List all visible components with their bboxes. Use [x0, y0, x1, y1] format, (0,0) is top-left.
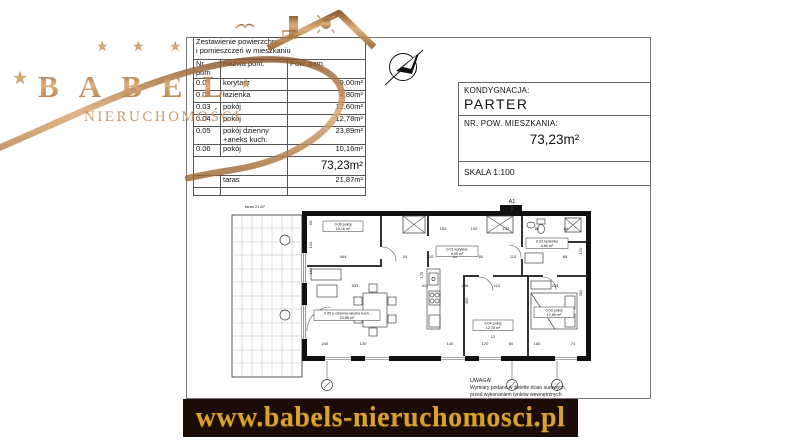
star-icon: ★ [169, 39, 182, 55]
dimension-label: 302 [578, 289, 583, 296]
fridge [429, 315, 440, 327]
dimension-label: 180 [534, 341, 541, 346]
storey-section: KONDYGNACJA: PARTER [459, 83, 650, 115]
dimension-label: taras 21,87 [245, 204, 266, 209]
room-label: 0.06 pokój10,16 m² [323, 221, 363, 232]
dimension-label: 110 [510, 254, 517, 259]
dimension-label: 24 [403, 254, 408, 259]
room-label-text: 0.03 pokój [545, 308, 562, 312]
room-label-text: 0.06 pokój [334, 222, 351, 226]
table-row: 0.06pokój10,16m² [194, 145, 366, 157]
room-label: 0.02 łazienka4,80 m² [526, 238, 568, 249]
star-icon: ★ [96, 39, 109, 55]
total-area-cell: 73,23m² [288, 157, 366, 176]
table-cell: 12,60m² [288, 102, 366, 114]
table-cell: pokój [221, 114, 288, 126]
room-label: 0.01 korytarz9,00 m² [436, 246, 478, 257]
table-cell: korytarz [221, 78, 288, 90]
title-block: KONDYGNACJA: PARTER NR. POW. MIESZKANIA:… [458, 82, 651, 186]
dimension-label: 12 [491, 334, 496, 339]
table-cell: 0.05 [194, 126, 221, 145]
table-title-line2: i pomieszczeń w mieszkaniu [196, 47, 363, 56]
dimension-label: 296 [462, 283, 469, 288]
table-row: 0.05pokój dzienny +aneks kuch.23,89m² [194, 126, 366, 145]
table-title-cell: Zestawienie powierzchni i pomieszczeń w … [194, 38, 366, 60]
table-title-row: Zestawienie powierzchni i pomieszczeń w … [194, 38, 366, 60]
dimension-label: 120 [308, 241, 313, 248]
table-row: 0.02łazienka4,80m² [194, 90, 366, 102]
table-cell: 10,16m² [288, 145, 366, 157]
dimension-label: 175 [419, 271, 424, 278]
room-label-text: 23,89 m² [340, 316, 355, 320]
table-cell: pokój dzienny +aneks kuch. [221, 126, 288, 145]
coffee-table [317, 285, 337, 297]
table-total-row: 73,23m² [194, 157, 366, 176]
bathtub [525, 253, 543, 263]
storey-label: KONDYGNACJA: [464, 86, 645, 95]
dimension-label: 132 [503, 226, 510, 231]
room-label-text: 0.04 pokój [484, 321, 501, 325]
sink [429, 273, 438, 285]
dimension-label: 120 [482, 341, 489, 346]
table-cell: pokój [221, 145, 288, 157]
table-header-row: Nr pom Nazwa pom. Pow. pom. [194, 60, 366, 79]
dimension-label: 120 [578, 247, 583, 254]
scale-label: SKALA 1:100 [464, 167, 645, 177]
dimension-label: 50 [308, 220, 313, 225]
apartment-area-value: 73,23m² [464, 132, 645, 147]
table-row: 0.03pokój12,60m² [194, 102, 366, 114]
wardrobe [531, 281, 551, 289]
note-line1: Wymiary podano w świetle ścian surowych, [470, 385, 645, 392]
table-cell: 0.01 [194, 78, 221, 90]
bird-icon [236, 25, 254, 29]
table-cell: 12,78m² [288, 114, 366, 126]
dimension-label: 162 [308, 267, 313, 274]
scale-section: SKALA 1:100 [459, 161, 650, 187]
dimension-label: 246 [322, 341, 329, 346]
table-cell: 0.02 [194, 90, 221, 102]
table-cell: 21,87m² [288, 176, 366, 188]
sofa [311, 269, 341, 280]
room-label-text: 0.01 korytarz [446, 247, 467, 251]
apartment-area-label: NR. POW. MIESZKANIA: [464, 119, 645, 128]
room-label-text: 4,80 m² [541, 244, 554, 248]
dimension-label: 110 [494, 283, 501, 288]
table-cell: pokój [221, 102, 288, 114]
dimension-label: 462 [464, 297, 469, 304]
table-cell: taras [221, 176, 288, 188]
axis-marker-circle [280, 310, 290, 320]
axis-label: A1 [509, 199, 516, 205]
col-header-name: Nazwa pom. [221, 60, 288, 79]
apartment-area-section: NR. POW. MIESZKANIA: 73,23m² [459, 115, 650, 161]
star-icon: ★ [12, 68, 28, 89]
room-label-text: 0.05 p.dzienny+aneks kuch. [324, 311, 370, 315]
terrace [232, 215, 302, 377]
room-label-text: 0.02 łazienka [536, 239, 559, 243]
star-icon: ★ [132, 39, 145, 55]
floor-plan-drawing: A1 taras 21,8715410013280644442412064801… [225, 195, 595, 405]
dimension-label: 64 [564, 226, 569, 231]
storey-value: PARTER [464, 96, 645, 112]
col-header-area: Pow. pom. [288, 60, 366, 79]
dimension-label: 412 [422, 283, 429, 288]
dimension-label: 444 [340, 254, 347, 259]
room-label-text: 10,16 m² [336, 227, 351, 231]
dimension-label: 80 [535, 226, 540, 231]
dimension-label: 60 [509, 341, 514, 346]
table-cell [194, 188, 221, 196]
table-row: 0.04pokój12,78m² [194, 114, 366, 126]
dimension-label: 100 [471, 226, 478, 231]
dimension-label: 234 [552, 283, 559, 288]
room-label: 0.03 pokój12,60 m² [534, 307, 574, 318]
axis-marker-circle [280, 235, 290, 245]
sun-icon [314, 12, 338, 36]
plan-note: UWAGA! Wymiary podano w świetle ścian su… [470, 378, 645, 399]
website-band: www.babels-nieruchomosci.pl [183, 399, 578, 437]
table-cell: 0.03 [194, 102, 221, 114]
toilet-tank [537, 219, 545, 224]
dimension-label: 68 [563, 254, 568, 259]
dimension-label: 120 [427, 254, 434, 259]
dimension-label: 130 [360, 341, 367, 346]
spacer-cell [194, 157, 288, 176]
note-line2: przed wykonaniem tynków wewnętrznych [470, 392, 645, 399]
note-title: UWAGA! [470, 378, 645, 385]
table-cell: 23,89m² [288, 126, 366, 145]
table-cell: 4,80m² [288, 90, 366, 102]
room-label-text: 12,78 m² [486, 326, 501, 330]
table-row: taras21,87m² [194, 176, 366, 188]
col-header-nr: Nr pom [194, 60, 221, 79]
dimension-label: 533 [352, 283, 359, 288]
room-label-text: 9,00 m² [451, 252, 464, 256]
table-row: 0.01korytarz9,00m² [194, 78, 366, 90]
dimension-label: 140 [447, 341, 454, 346]
dimension-label: 80 [479, 254, 484, 259]
area-table-body: 0.01korytarz9,00m²0.02łazienka4,80m²0.03… [194, 78, 366, 196]
interior-walls [307, 216, 587, 356]
north-arrow-icon [383, 47, 425, 89]
website-url: www.babels-nieruchomosci.pl [196, 402, 566, 434]
table-cell: 9,00m² [288, 78, 366, 90]
table-cell: 0.06 [194, 145, 221, 157]
room-label: 0.05 p.dzienny+aneks kuch.23,89 m² [314, 310, 380, 321]
table-cell: łazienka [221, 90, 288, 102]
dimension-label: 154 [440, 226, 447, 231]
floor-plan-sheet-page: Zestawienie powierzchni i pomieszczeń w … [0, 0, 800, 440]
room-label: 0.04 pokój12,78 m² [473, 320, 513, 331]
table-cell [194, 176, 221, 188]
table-cell: 0.04 [194, 114, 221, 126]
room-label-text: 12,60 m² [547, 313, 562, 317]
dimension-label: 74 [571, 341, 576, 346]
area-table: Zestawienie powierzchni i pomieszczeń w … [193, 37, 366, 196]
